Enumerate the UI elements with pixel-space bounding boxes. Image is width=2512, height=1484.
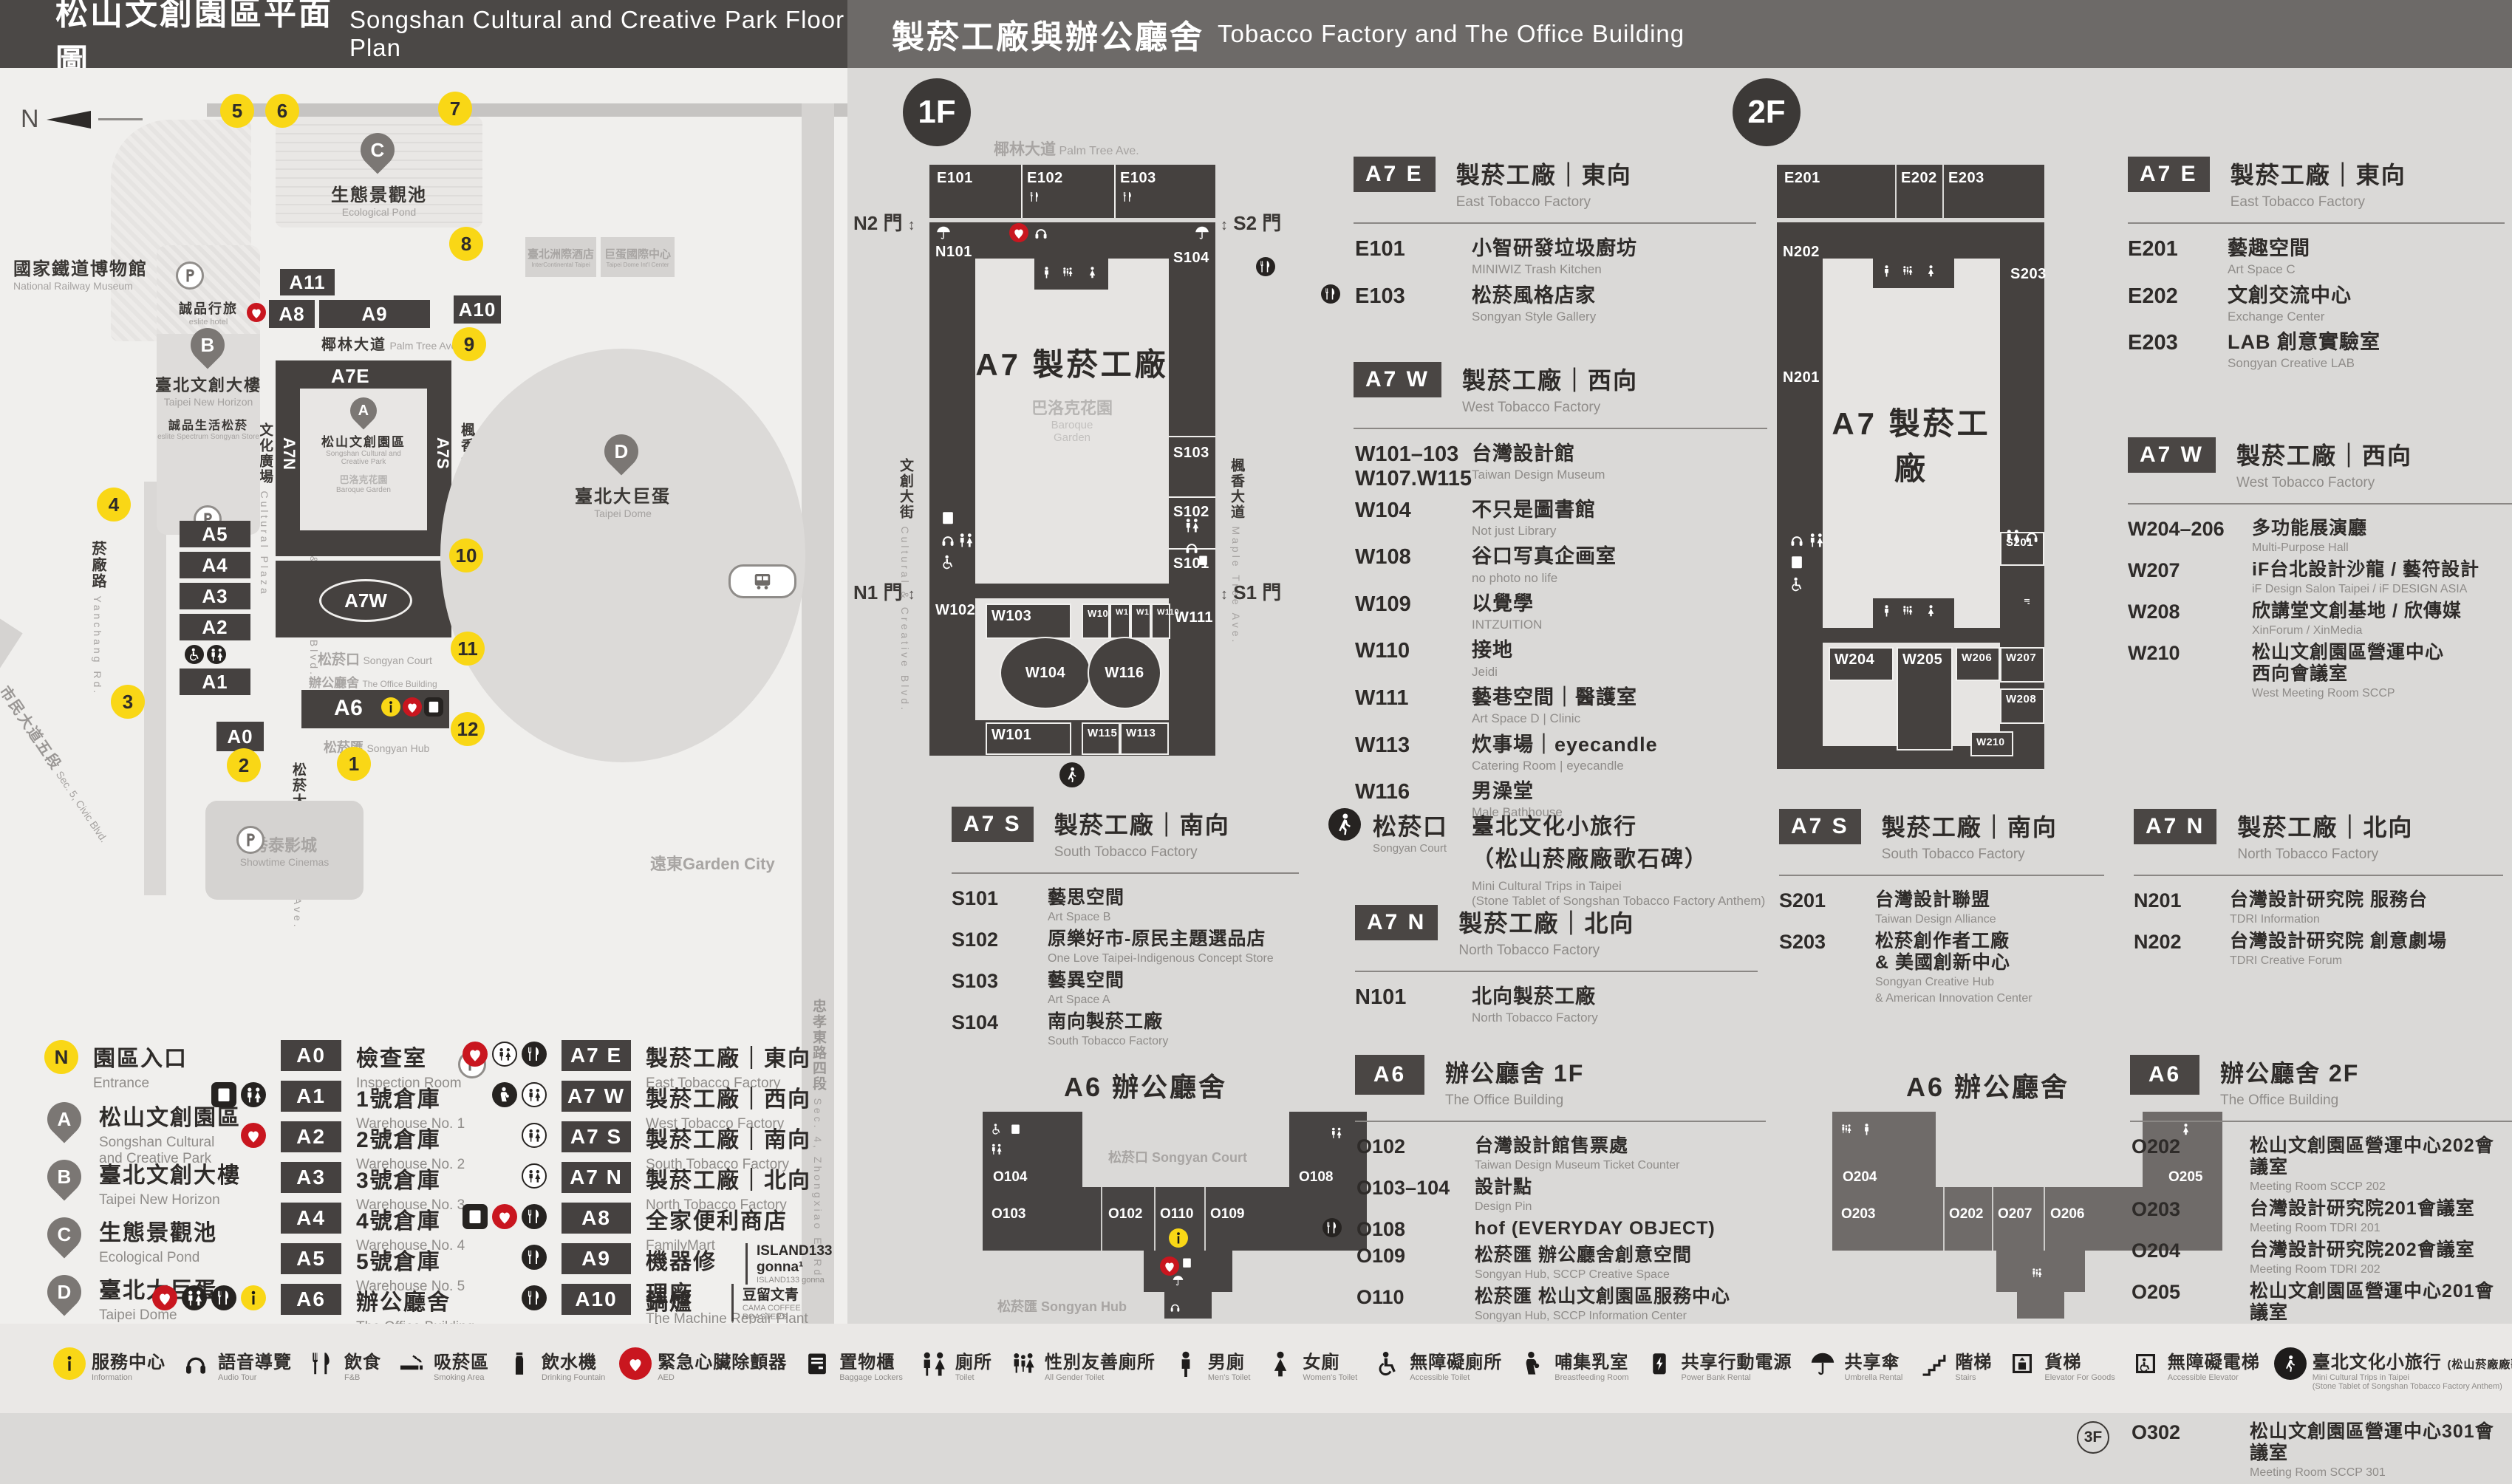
dining-icon [522, 1285, 547, 1310]
footer-icon [503, 1347, 536, 1380]
aed-icon [492, 1204, 517, 1229]
office-building-label: 辦公廳舍 The Office Building [309, 672, 437, 691]
dome-label: 臺北大巨蛋 Taipei Dome [553, 482, 693, 519]
road-label-palm: 椰林大道 Palm Tree Ave. [321, 332, 460, 354]
womens-toilet-icon [1086, 266, 1099, 278]
building-code-badge: A3 [281, 1162, 341, 1193]
eslite-hotel-label: 誠品行旅 eslite hotel [164, 298, 253, 326]
umbrella-icon [1172, 1274, 1184, 1287]
location-pin-icon: B [40, 1152, 88, 1200]
locker-icon [211, 1082, 236, 1107]
all-gender-toilet-icon [1901, 264, 1914, 277]
audio-tour-icon [2024, 528, 2040, 544]
accessible-toilet-icon [990, 1123, 1003, 1135]
section-title-zh: 製菸工廠與辦公廳舍 [892, 10, 1204, 58]
footer-legend-item: 臺北文化小旅行 (松山菸廠廠歌石碑) Mini Cultural Trips i… [2274, 1347, 2512, 1391]
locker-icon [1197, 554, 1209, 567]
building-code-badge: A7 W [562, 1081, 631, 1112]
room-list-row: W101–103W107.W115 台灣設計館Taiwan Design Mus… [1355, 442, 1767, 492]
footer-icon [1006, 1347, 1039, 1380]
building-a5: A5 [180, 521, 250, 547]
dome-center-block: 巨蛋國際中心 Taipei Dome Int'l Center [601, 237, 675, 277]
footer-icon [1371, 1347, 1404, 1380]
footer-icon [2274, 1347, 2307, 1380]
section-badge: A7 E [1354, 157, 1436, 192]
section-2f-a7n: A7 N 製菸工廠｜北向North Tobacco Factory N201 台… [2134, 809, 2503, 972]
entrance-5: 5 [220, 94, 254, 128]
section-a6-2f: A6 辦公廳舍 2FThe Office Building O202 松山文創園… [2130, 1055, 2512, 1484]
dining-icon [1028, 191, 1041, 203]
parking-icon [236, 826, 264, 854]
compass: N [21, 105, 143, 134]
room-list-row: N201 台灣設計研究院 服務台TDRI Information [2134, 889, 2503, 927]
entrance-3: 3 [111, 685, 145, 719]
building-code-badge: A8 [562, 1203, 631, 1234]
room-list-row: O109 松菸匯 辦公廳舍創意空間Songyan Hub, SCCP Creat… [1356, 1245, 1766, 1282]
entrance-4: 4 [97, 488, 131, 522]
footer-icon [1264, 1347, 1297, 1380]
room-list-row: S103 藝異空間Art Space A [952, 970, 1299, 1008]
pond-label: 生態景觀池 Ecological Pond [316, 180, 442, 218]
umbrella-icon [935, 225, 952, 241]
room-list-row: S203 松菸創作者工廠& 美國創新中心 Songyan Creative Hu… [1779, 931, 2104, 1006]
road-civic [0, 585, 23, 1104]
toilet-icon [1808, 532, 1824, 548]
breastfeeding-icon [492, 1082, 517, 1107]
toilet-icon [241, 1082, 266, 1107]
entrance-12: 12 [451, 712, 485, 746]
building-code-badge: A7 E [562, 1040, 631, 1071]
footer-icon [306, 1347, 338, 1380]
dining-icon [1122, 191, 1134, 203]
road-top [207, 103, 847, 117]
building-code-badge: A1 [281, 1081, 341, 1112]
intercontinental-block: 臺北洲際酒店 InterContinental Taipei [525, 237, 596, 277]
cultural-trips-icon [1059, 762, 1085, 787]
showtime-block: 秀泰影城 Showtime Cinemas [205, 801, 364, 900]
footer-legend: 服務中心 Information 語音導覽 Audio Tour 飲食 F&B [53, 1347, 2512, 1391]
footer-legend-item: 共享傘 Umbrella Rental [1806, 1347, 1903, 1382]
footer-legend-item: 緊急心臟除顫器 AED [619, 1347, 787, 1382]
location-pin-icon: D [40, 1268, 88, 1316]
footer-legend-item: 無障礙廁所 Accessible Toilet [1371, 1347, 1502, 1382]
room-list-row: O102 台灣設計館售票處Taiwan Design Museum Ticket… [1356, 1135, 1766, 1173]
row-icon [1322, 1218, 1342, 1237]
building-code-badge: A7 S [562, 1121, 631, 1152]
building-a10: A10 [454, 295, 501, 324]
a7s-wing-label: A7S [433, 437, 452, 469]
toilet-icon [492, 1042, 517, 1067]
umbrella-icon [1194, 225, 1210, 241]
parking-icon [176, 261, 204, 290]
road-label-zhongxiao: 忠孝東路四段 Sec. 4, Zhongxiao E. Rd. [808, 999, 828, 1284]
room-list-row: S201 台灣設計聯盟 Taiwan Design Alliance [1779, 889, 2104, 927]
locker-icon [1009, 1123, 1022, 1135]
footer-legend-item: 男廁 Men's Toilet [1170, 1347, 1251, 1382]
accessible-toilet-icon [185, 645, 204, 664]
section-title-en: Tobacco Factory and The Office Building [1218, 20, 1685, 48]
room-list-row: O108 hof (EVERYDAY OBJECT) [1356, 1218, 1766, 1241]
room-list-row: E201 藝趣空間Art Space C [2128, 237, 2505, 278]
section-2f-a7e: A7 E 製菸工廠｜東向East Tobacco Factory E201 藝趣… [2128, 157, 2505, 378]
locker-icon [424, 697, 443, 717]
a7w-wing-label: A7W [319, 579, 412, 622]
road-label-yanchang: 菸廠路 Yanchang Rd. [87, 541, 109, 696]
dining-icon [522, 1204, 547, 1229]
aed-icon [1009, 223, 1028, 242]
toilet-icon [990, 1143, 1003, 1155]
footer-legend-item: 飲水機 Drinking Fountain [503, 1347, 605, 1382]
footer-icon [1643, 1347, 1676, 1380]
a7e-wing-label: A7E [331, 365, 369, 388]
room-list-row: O203 台灣設計研究院201會議室Meeting Room TDRI 201 [2132, 1198, 2512, 1236]
dining-icon [522, 1245, 547, 1270]
room-list-row: W110 接地Jeidi [1355, 639, 1767, 680]
road-yanchang [144, 482, 166, 895]
room-list-row: S102 原樂好市-原民主題選品店One Love Taipei-Indigen… [952, 929, 1299, 966]
section-badge: A7 W [2128, 437, 2216, 473]
compass-label: N [21, 105, 39, 134]
section-badge: A6 [2130, 1055, 2199, 1095]
room-list-row: N202 台灣設計研究院 創意劇場TDRI Creative Forum [2134, 931, 2503, 968]
room-list-row: O204 台灣設計研究院202會議室Meeting Room TDRI 202 [2132, 1239, 2512, 1277]
room-list-row: 3F O302 松山文創園區營運中心301會議室Meeting Room SCC… [2132, 1421, 2512, 1480]
dining-icon [211, 1285, 236, 1310]
mens-toilet-icon [1880, 604, 1893, 617]
new-horizon-label: 臺北文創大樓 Taipei New Horizon [149, 372, 267, 408]
toilet-icon [1330, 1126, 1342, 1139]
footer-icon [2129, 1347, 2162, 1380]
all-gender-toilet-icon [1061, 266, 1074, 278]
building-code-badge: A9 [562, 1243, 631, 1274]
building-a0: A0 [216, 722, 264, 751]
mens-toilet-icon [1860, 1123, 1873, 1135]
room-list-row: E203 LAB 創意實驗室Songyan Creative LAB [2128, 331, 2505, 372]
footer-legend-item: 吸菸區 Smoking Area [395, 1347, 489, 1382]
footer-legend-item: 女廁 Women's Toilet [1264, 1347, 1357, 1382]
toilet-icon [522, 1123, 547, 1148]
park-map: 菸廠路 Yanchang Rd. 市民大道五段 Sec. 5, Civic Bl… [0, 68, 847, 1324]
footer-legend-item: 語音導覽 Audio Tour [180, 1347, 292, 1382]
dining-icon [522, 1042, 547, 1067]
entrance-2: 2 [227, 748, 261, 782]
entrance-1: 1 [337, 747, 371, 781]
gate-n1: N1 門 ↕ [853, 578, 915, 605]
footer-legend-item: 貨梯 Elevator For Goods [2006, 1347, 2115, 1382]
toilet-icon [522, 1163, 547, 1189]
aed-icon [247, 303, 266, 322]
header-left: 松山文創園區平面圖 Songshan Cultural and Creative… [0, 0, 847, 68]
section-badge: A7 S [1779, 809, 1861, 844]
building-a3: A3 [180, 583, 250, 609]
locker-icon [2021, 595, 2033, 608]
section-2f-a7w: A7 W 製菸工廠｜西向West Tobacco Factory W204–20… [2128, 437, 2512, 705]
aed-icon [152, 1285, 177, 1310]
entrance-7: 7 [438, 92, 472, 126]
mens-toilet-icon [1880, 264, 1893, 277]
section-badge: A7 N [2134, 809, 2216, 844]
womens-toilet-icon [1925, 264, 1937, 277]
floor1-plan: E101 E102 E103 N101 S104 S103 S102 S101 … [929, 118, 1247, 805]
compass-arrow-icon [47, 111, 91, 129]
songyan-court-label: 松菸口 Songyan Court [318, 649, 432, 669]
section-badge: A7 E [2128, 157, 2210, 192]
aed-icon [1160, 1256, 1179, 1276]
building-code-badge: A7 N [562, 1162, 631, 1193]
footer-icon [1516, 1347, 1549, 1380]
mens-toilet-icon [1040, 266, 1053, 278]
entrance-8: 8 [449, 227, 483, 261]
location-pin-icon: A [40, 1095, 88, 1143]
footer-legend-item: 飲食 F&B [306, 1347, 381, 1382]
building-a4: A4 [180, 552, 250, 578]
room-list-row: W109 以覺學INTZUITION [1355, 592, 1767, 633]
footer-icon [1170, 1347, 1202, 1380]
legend-building-row: A6 辦公廳舍The Office Building [155, 1284, 474, 1324]
building-code-badge: A10 [562, 1284, 631, 1315]
taipei-dome-shape [440, 349, 805, 762]
a6-map-label: A6 [334, 696, 363, 721]
room-list-row: O110 松菸匯 松山文創園區服務中心Songyan Hub, SCCP Inf… [1356, 1286, 1766, 1324]
room-list-row: W111 藝巷空間｜醫護室Art Space D | Clinic [1355, 686, 1767, 727]
building-code-badge: A0 [281, 1040, 341, 1071]
section-a6-1f: A6 辦公廳舍 1FThe Office Building O102 台灣設計館… [1355, 1055, 1766, 1327]
building-a9: A9 [319, 300, 430, 328]
aed-icon [241, 1123, 266, 1148]
room-list-row: W104 不只是圖書館Not just Library [1355, 499, 1767, 539]
footer-legend-item: 共享行動電源 Power Bank Rental [1643, 1347, 1792, 1382]
entrance-11: 11 [451, 632, 485, 666]
entrance-badge: N [44, 1040, 78, 1074]
section-badge: A6 [1355, 1055, 1424, 1095]
bus-stop-icon [728, 564, 796, 598]
room-list-row: N101 北向製菸工廠North Tobacco Factory [1355, 985, 1758, 1026]
room-list-row: W207 iF台北設計沙龍 / 藝符設計iF Design Salon Taip… [2128, 559, 2512, 597]
room-list-row: O103–104 設計點Design Pin [1356, 1177, 1766, 1214]
songyan-court-info: 松菸口 Songyan Court 臺北文化小旅行 （松山菸廠廠歌石碑） Min… [1328, 808, 1772, 909]
building-code-badge: A5 [281, 1243, 341, 1274]
audio-tour-icon [940, 532, 956, 548]
audio-tour-icon [1169, 1301, 1181, 1313]
footer-icon [1806, 1347, 1839, 1380]
footer-icon [2006, 1347, 2038, 1380]
entrance-9: 9 [452, 327, 486, 361]
floor-3f-badge: 3F [2077, 1421, 2109, 1454]
entrance-10: 10 [449, 538, 483, 572]
toilet-icon [182, 1285, 207, 1310]
info-icon [381, 697, 400, 717]
locker-icon [463, 1204, 488, 1229]
entrance-6: 6 [265, 94, 299, 128]
building-code-badge: A4 [281, 1203, 341, 1234]
railway-museum-label: 國家鐵道博物館 National Railway Museum [13, 254, 148, 292]
locker-icon [940, 510, 956, 526]
locker-icon [1789, 554, 1805, 570]
room-list-row: W210 松山文創園區營運中心西向會議室West Meeting Room SC… [2128, 642, 2512, 701]
footer-legend-item: 廁所 Toilet [917, 1347, 992, 1382]
room-list-row: O202 松山文創園區營運中心202會議室Meeting Room SCCP 2… [2132, 1135, 2512, 1194]
office-1f-plan: A6 辦公廳舍 O104 O108 松菸口 Songyan Court O103… [983, 1053, 1382, 1322]
all-gender-toilet-icon [2030, 1267, 2043, 1279]
room-list-row: W208 欣講堂文創基地 / 欣傳媒XinForum / XinMedia [2128, 601, 2512, 638]
accessible-toilet-icon [940, 554, 956, 570]
legend-building-row: A10 鍋爐房 豆留文青 CAMA COFFEE ROASTERS Boiler… [458, 1284, 847, 1324]
footer-icon [801, 1347, 833, 1380]
room-list-row: W108 谷口写真企画室no photo no life [1355, 545, 1767, 586]
building-code-badge: A2 [281, 1121, 341, 1152]
footer-legend-item: 性別友善廁所 All Gender Toilet [1006, 1347, 1156, 1382]
womens-toilet-icon [1925, 604, 1937, 617]
audio-tour-icon [1789, 532, 1805, 548]
toilet-icon [1184, 517, 1200, 533]
footer-icon [619, 1347, 652, 1380]
row-icon [1321, 284, 1340, 304]
locker-icon [1181, 1256, 1193, 1269]
room-list-row: W113 炊事場｜eyecandleCatering Room | eyecan… [1355, 734, 1767, 774]
road-label-civic: 市民大道五段 Sec. 5, Civic Blvd. [0, 681, 116, 846]
gate-n2: N2 門 ↕ [853, 208, 915, 236]
toilet-icon [207, 645, 226, 664]
building-a1: A1 [180, 669, 250, 695]
all-gender-toilet-icon [1901, 604, 1914, 617]
building-a8: A8 [269, 300, 315, 328]
section-badge: A7 N [1355, 905, 1438, 940]
section-1f-a7n: A7 N 製菸工廠｜北向North Tobacco Factory N101 北… [1355, 905, 1758, 1033]
info-icon [1169, 1228, 1188, 1248]
footer-icon [395, 1347, 428, 1380]
footer-icon [1917, 1347, 1949, 1380]
cultural-trips-icon [1328, 808, 1361, 841]
section-1f-a7e: A7 E 製菸工廠｜東向East Tobacco Factory E101 小智… [1354, 157, 1756, 331]
accessible-toilet-icon [1789, 576, 1805, 592]
compass-line [98, 118, 143, 120]
room-list-row: W204–206 多功能展演廳Multi-Purpose Hall [2128, 518, 2512, 555]
floor2-plan: E201 E202 E203 N202 N201 S203 S201 A7 製菸… [1777, 118, 2058, 813]
toilet-icon [958, 532, 974, 548]
room-list-row: E103 松菸風格店家Songyan Style Gallery [1355, 284, 1756, 325]
room-list-row: E101 小智研發垃圾廚坊MINIWIZ Trash Kitchen [1355, 237, 1756, 278]
dining-icon [1256, 257, 1275, 276]
header-right: 製菸工廠與辦公廳舍 Tobacco Factory and The Office… [847, 0, 2512, 68]
park-label: 松山文創園區 Songshan Cultural and Creative Pa… [301, 431, 426, 494]
section-1f-a7s: A7 S 製菸工廠｜南向South Tobacco Factory S101 藝… [952, 807, 1299, 1053]
room-list-row: S101 藝思空間Art Space B [952, 887, 1299, 925]
section-1f-a7w: A7 W 製菸工廠｜西向West Tobacco Factory W101–10… [1354, 362, 1767, 827]
toilet-icon [2004, 528, 2021, 544]
building-a2: A2 [180, 614, 250, 640]
footer-legend-item: 哺集乳室 Breastfeeding Room [1516, 1347, 1628, 1382]
garden-city-label: 遠東Garden City [650, 851, 775, 875]
location-pin-icon: C [40, 1210, 88, 1258]
page-title-en: Songshan Cultural and Creative Park Floo… [349, 6, 847, 62]
footer-legend-item: 階梯 Stairs [1917, 1347, 1992, 1382]
toilet-icon [522, 1082, 547, 1107]
section-badge: A7 S [952, 807, 1034, 842]
aed-icon [403, 697, 422, 717]
footer-icon [180, 1347, 212, 1380]
footer-icon [53, 1347, 86, 1380]
building-a11: A11 [280, 269, 335, 295]
room-list-row: S104 南向製菸工廠South Tobacco Factory [952, 1011, 1299, 1049]
audio-tour-icon [1184, 539, 1200, 555]
section-badge: A7 W [1354, 362, 1441, 397]
footer-legend-item: 服務中心 Information [53, 1347, 165, 1382]
building-code-badge: A6 [281, 1284, 341, 1315]
info-icon [241, 1285, 266, 1310]
footer-legend-item: 無障礙電梯 Accessible Elevator [2129, 1347, 2260, 1382]
footer-legend-item: 置物櫃 Baggage Lockers [801, 1347, 903, 1382]
eslite-spectrum-label: 誠品生活松菸 eslite Spectrum Songyan Store [149, 415, 267, 441]
all-gender-toilet-icon [1840, 1123, 1852, 1135]
a7n-wing-label: A7N [279, 437, 298, 470]
room-list-row: E202 文創交流中心Exchange Center [2128, 284, 2505, 325]
section-2f-a7s: A7 S 製菸工廠｜南向South Tobacco Factory S201 台… [1779, 809, 2104, 1010]
footer-icon [917, 1347, 949, 1380]
audio-tour-icon [1033, 225, 1049, 241]
aed-icon [463, 1042, 488, 1067]
